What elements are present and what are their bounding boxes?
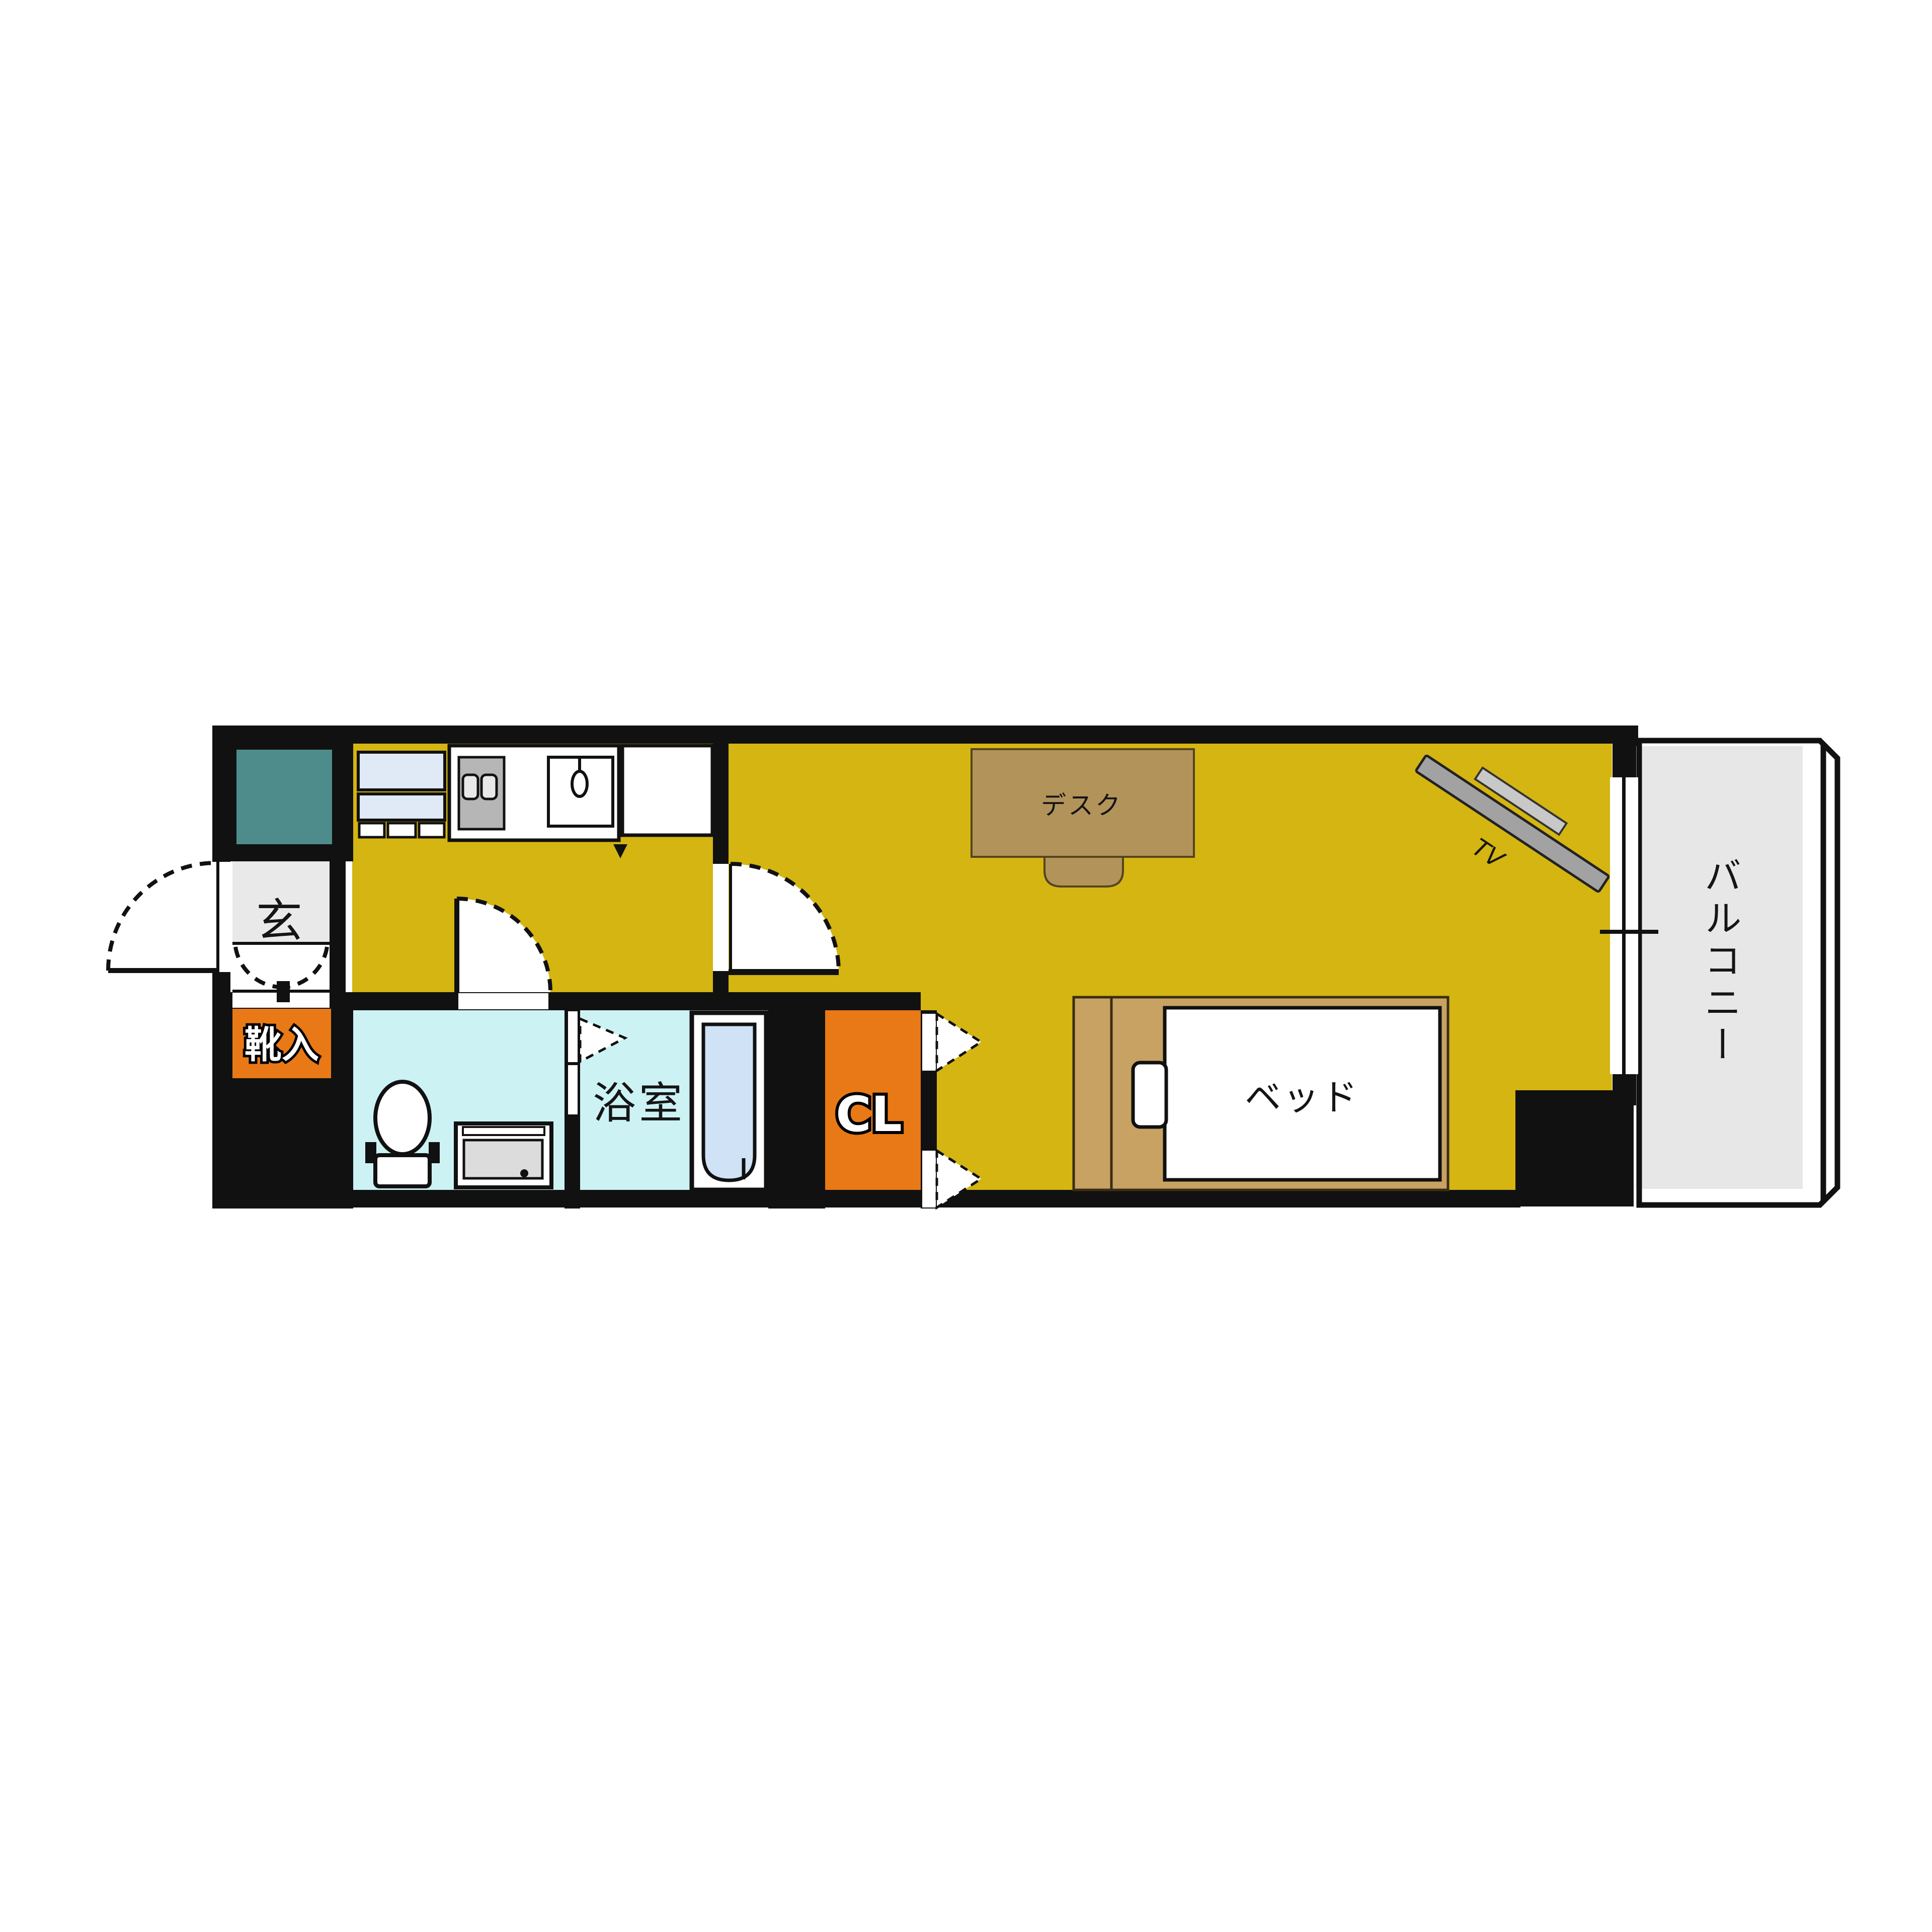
entrance-label: 玄 [256,894,302,948]
wall-kitchen-living-upper [713,744,729,864]
utility-shaft [236,750,332,844]
wall-bottom [212,1190,1520,1207]
wall-entrance-right [330,861,346,993]
wall-corner-notch [1515,1090,1634,1206]
window-sash-line [1622,777,1626,1074]
washing-machine-icon [456,1123,551,1187]
floor-plan-drawing: 玄 靴入 浴室 CL デスク ベッド TV バルコニー [0,0,1932,1932]
shoe-cabinet-label: 靴入 [245,1023,319,1067]
bed-pillow [1133,1063,1166,1127]
sink-icon [548,757,613,826]
living-door-opening [714,864,729,971]
desk-label: デスク [1041,791,1122,820]
wall-window-top-block [1613,726,1638,777]
wall-left-upper [212,726,230,862]
entrance-door-stop [277,981,290,1002]
entrance-kitchen-strip [346,861,352,992]
stove-icon [459,757,504,829]
kitchen-counter-end [622,746,712,835]
closet-door-jamb-upper [922,1014,936,1071]
closet-door-jamb-lower [922,1151,936,1207]
closet-label: CL [836,1086,902,1143]
refrigerator-icon [358,752,445,837]
balcony-label: バルコニー [1698,856,1741,1068]
floor-plan-canvas: 玄 靴入 浴室 CL デスク ベッド TV バルコニー [0,0,1932,1932]
bathtub-icon [692,1013,766,1190]
wall-kitchen-living-lower [713,971,729,992]
bath-door-panel-upper [567,1010,579,1063]
bath-door-panel-lower [567,1064,579,1115]
wall-corridor-band [352,992,921,1010]
bed-label: ベッド [1245,1076,1359,1118]
desk-chair [1044,855,1123,887]
bathroom-label: 浴室 [593,1078,685,1129]
washroom-door-sill [458,993,548,1009]
wall-top [212,726,1615,744]
front-door-closed-leaf [216,862,219,972]
front-door-swing-arc [108,863,216,971]
window-center-tick [1600,930,1658,934]
wall-bath-closet [768,1010,825,1209]
